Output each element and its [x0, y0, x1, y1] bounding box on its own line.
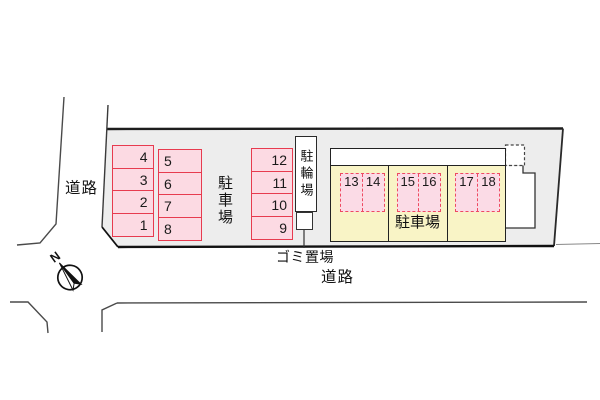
building-step-extension: [505, 165, 535, 228]
parking-space-2: 2: [112, 190, 154, 214]
dashed-annex-box: [506, 145, 525, 166]
parking-space-15: 15: [398, 174, 420, 211]
parking-space-13: 13: [341, 174, 363, 211]
parking-space-8: 8: [158, 217, 202, 241]
road-label-left: 道路: [65, 176, 98, 198]
site-boundary-top: [107, 129, 563, 130]
parking-space-16: 16: [419, 174, 440, 211]
parking-space-11: 11: [251, 171, 294, 195]
main-parking-label: 駐車場: [214, 175, 235, 226]
road-label-bottom: 道路: [321, 265, 354, 287]
garbage-area-box: [296, 212, 313, 230]
parking-space-18: 18: [478, 174, 499, 211]
parking-space-7: 7: [158, 194, 202, 218]
compass: N: [41, 244, 87, 294]
parking-pair-13-14: 13 14: [340, 173, 385, 212]
site-plan: N 4 3 2 1 5 6 7 8 12 11 10 9 駐車場 駐輪場 13 …: [0, 0, 600, 400]
parking-space-6: 6: [158, 172, 202, 196]
building-corridor: [330, 148, 506, 166]
road-edge-south-lower: [117, 302, 587, 303]
parking-pair-17-18: 17 18: [455, 173, 500, 212]
parking-space-10: 10: [251, 193, 294, 217]
building-parking-label: 駐車場: [388, 211, 447, 232]
road-corner-southwest: [10, 302, 48, 333]
bicycle-parking-label: 駐輪場: [297, 149, 316, 200]
parking-space-9: 9: [251, 216, 294, 240]
parking-pair-15-16: 15 16: [397, 173, 441, 212]
parking-space-17: 17: [456, 174, 478, 211]
road-edge-south-upper-east: [556, 244, 600, 245]
parking-space-4: 4: [112, 145, 154, 169]
parking-space-14: 14: [363, 174, 384, 211]
bicycle-parking-box: 駐輪場: [295, 136, 317, 212]
parking-space-1: 1: [112, 213, 154, 237]
parking-space-12: 12: [251, 148, 294, 172]
road-corner-southeast: [102, 303, 117, 332]
compass-north-label: N: [48, 249, 64, 266]
site-boundary-bottom: [118, 246, 554, 247]
road-edge-west-outer: [17, 97, 64, 245]
building-divider-2: [447, 165, 448, 242]
parking-space-5: 5: [158, 149, 202, 173]
garbage-area-label: ゴミ置場: [276, 247, 334, 267]
parking-space-3: 3: [112, 168, 154, 192]
